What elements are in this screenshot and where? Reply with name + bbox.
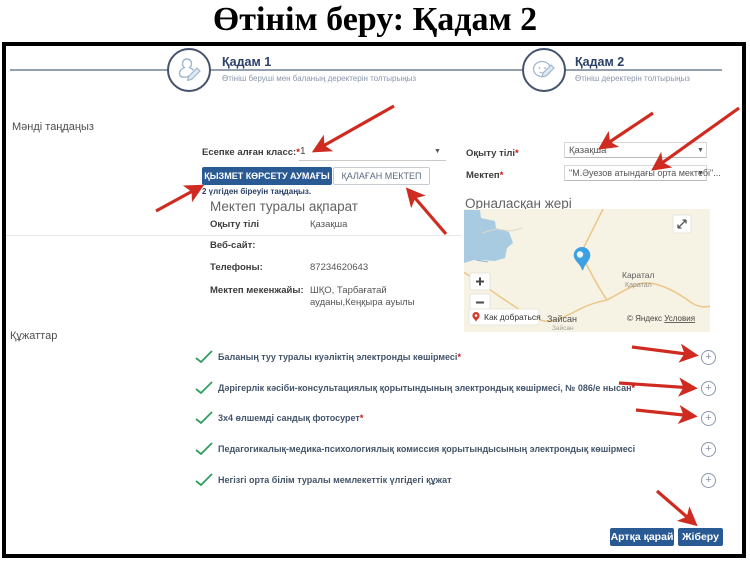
svg-text:Зайсан: Зайсан bbox=[552, 324, 574, 332]
svg-text:Как добраться: Как добраться bbox=[484, 312, 541, 322]
svg-text:Каратал: Каратал bbox=[622, 270, 654, 280]
svg-text:© Яндекс Условия: © Яндекс Условия bbox=[627, 314, 695, 323]
svg-text:Қаратал: Қаратал bbox=[625, 282, 652, 289]
svg-text:Зайсан: Зайсан bbox=[547, 314, 577, 324]
